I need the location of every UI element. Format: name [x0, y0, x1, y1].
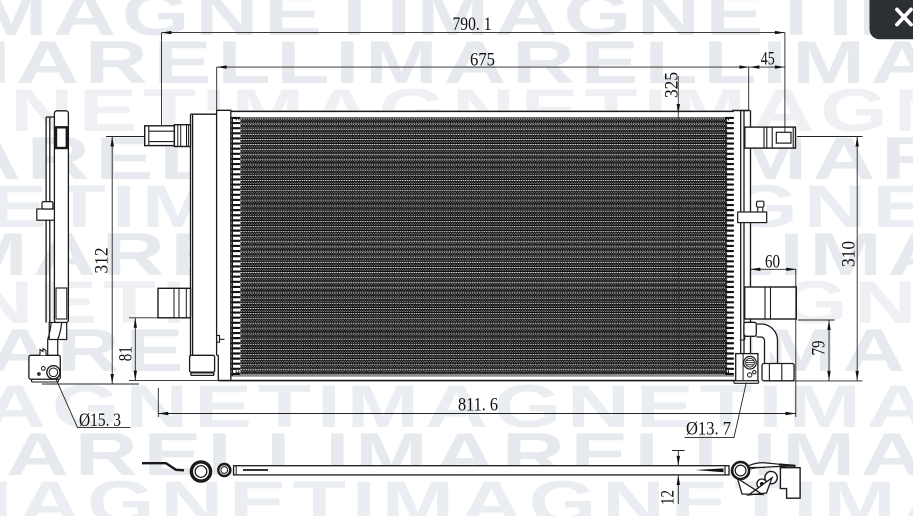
svg-text:60: 60	[765, 252, 780, 273]
svg-text:79: 79	[809, 341, 830, 356]
svg-text:12: 12	[658, 490, 679, 505]
svg-text:325: 325	[662, 72, 683, 98]
svg-text:Ø13. 7: Ø13. 7	[686, 419, 731, 440]
svg-text:45: 45	[761, 49, 775, 70]
svg-text:Ø15. 3: Ø15. 3	[79, 410, 121, 431]
svg-text:310: 310	[839, 241, 860, 267]
svg-text:811. 6: 811. 6	[458, 395, 498, 416]
svg-text:81: 81	[116, 346, 137, 361]
svg-text:312: 312	[92, 248, 113, 274]
svg-text:790. 1: 790. 1	[453, 14, 492, 35]
svg-text:675: 675	[470, 50, 495, 71]
